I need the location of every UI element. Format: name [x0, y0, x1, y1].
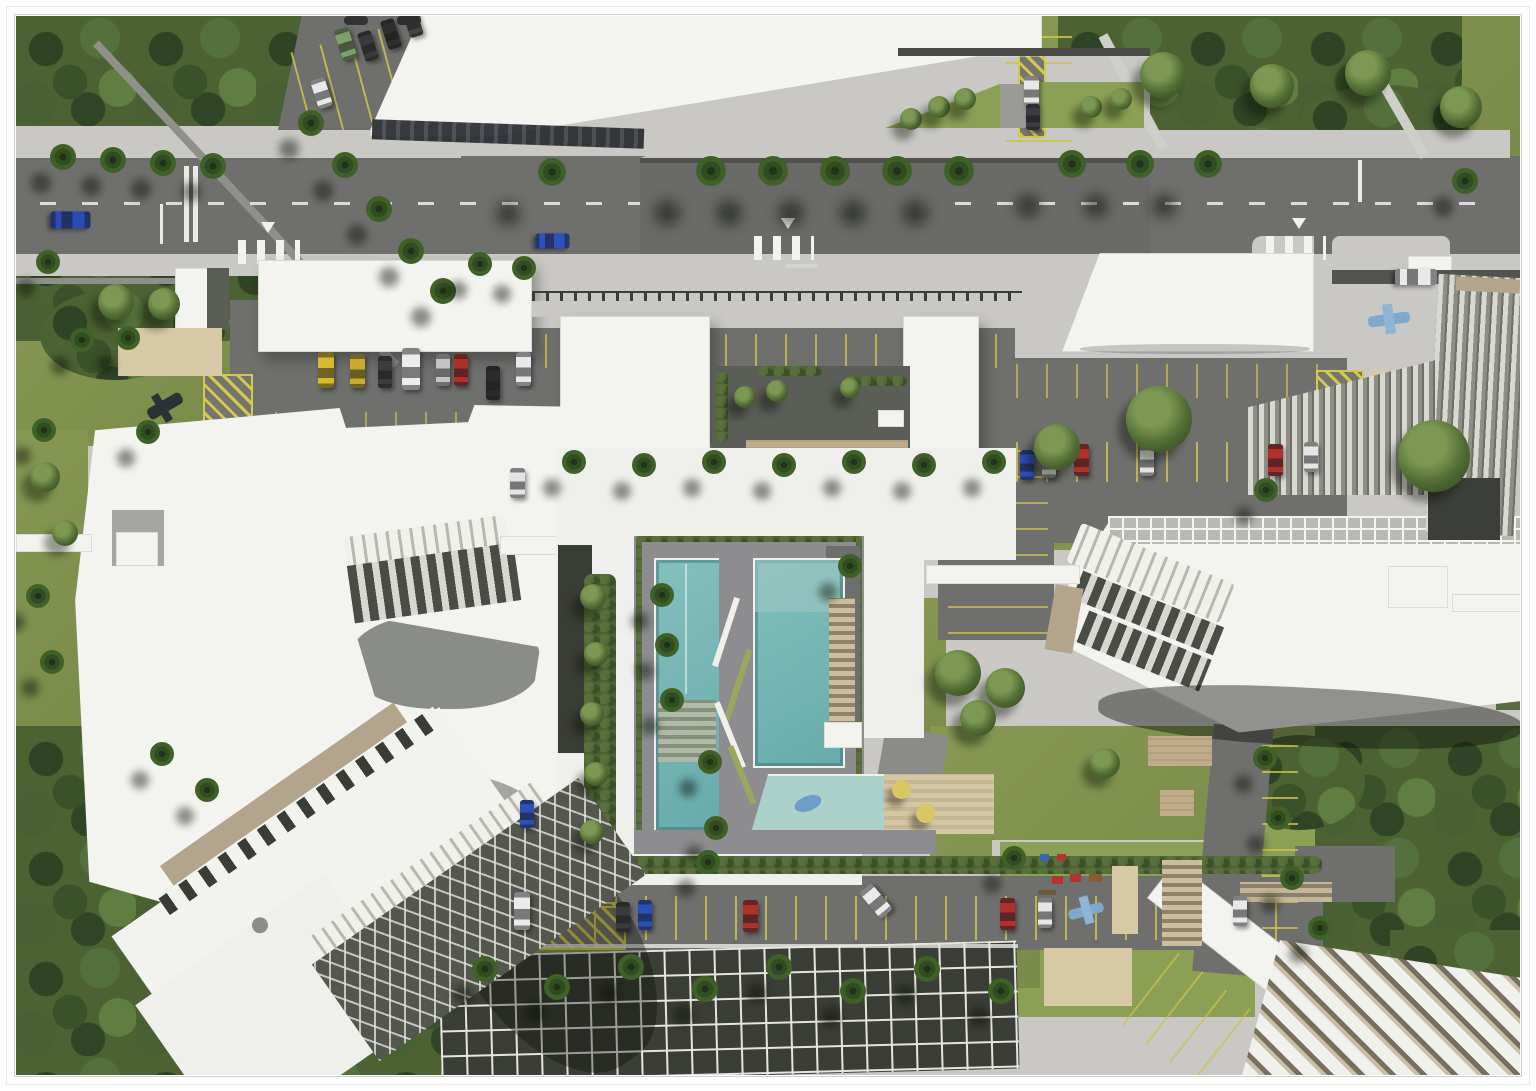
bridge-pool-east: [926, 565, 1080, 584]
umbrella-2: [916, 804, 935, 823]
lane-dash-right: [955, 202, 1500, 205]
palm-17: [538, 158, 566, 186]
bldg-c-right: [1062, 253, 1314, 352]
plines-se: [1262, 740, 1298, 955]
tree-14: [1398, 420, 1470, 492]
palm-18: [696, 156, 726, 186]
tree-09: [954, 88, 976, 110]
palm-09: [32, 418, 56, 442]
palm-05: [36, 250, 60, 274]
tree-06: [148, 288, 180, 320]
deck-bottom-gray: [634, 830, 936, 854]
tree-19: [580, 702, 604, 726]
tree-05: [98, 284, 134, 320]
car-21: [616, 902, 630, 932]
pool-right-shallow: [755, 560, 839, 612]
road-mark-c1: [786, 264, 818, 268]
palm-13: [398, 238, 424, 264]
palm-30: [772, 453, 796, 477]
frame-right: [1520, 0, 1536, 1091]
tree-08: [928, 96, 950, 118]
palm-56: [40, 650, 64, 674]
palm-27: [562, 450, 586, 474]
palm-12: [366, 196, 392, 222]
palm-55: [26, 584, 50, 608]
palm-38: [698, 750, 722, 774]
car-12: [486, 366, 500, 400]
car-stub-1: [344, 16, 368, 25]
umbrella-1: [892, 780, 911, 799]
car-22: [638, 900, 652, 930]
tree-18: [584, 642, 608, 666]
walk-fence-south: [532, 301, 1020, 317]
plines-rightlot-top: [1016, 364, 1346, 398]
playground-red-2: [1070, 874, 1081, 882]
wall-plaza-top: [898, 48, 1150, 56]
tree-10: [1080, 96, 1102, 118]
terrace-tree-2: [766, 380, 788, 402]
tree-15: [935, 650, 981, 696]
palm-54: [1002, 846, 1026, 870]
trellis-bench: [1162, 860, 1202, 946]
terrace-hedge-1: [716, 372, 728, 442]
lane-line-left: [160, 204, 163, 244]
sand-court-1: [1044, 948, 1132, 1006]
bldg-c-shadow: [1080, 344, 1310, 354]
terrace-tree-1: [734, 386, 756, 408]
bridge-far-east: [1452, 594, 1522, 612]
palm-04: [200, 153, 226, 179]
palm-03: [150, 150, 176, 176]
palm-46: [766, 954, 792, 980]
palm-01: [50, 144, 76, 170]
bldg-d-long: [258, 260, 532, 352]
tree-23: [1090, 748, 1120, 778]
sand-court-2: [1112, 866, 1138, 934]
crosswalk-center: [754, 236, 814, 260]
pergola-a: [1148, 736, 1212, 766]
playground-brown: [1089, 874, 1102, 882]
kiosk-dark: [207, 268, 229, 330]
w1-rooftop-box-white: [116, 532, 158, 566]
van-white: [402, 348, 420, 390]
stopbar-2: [193, 166, 198, 242]
car-23: [743, 900, 758, 932]
tree-17: [580, 584, 606, 610]
bus-white: [1395, 269, 1437, 285]
palm-53: [1308, 916, 1332, 940]
car-07: [1026, 104, 1040, 130]
palm-51: [1266, 806, 1290, 830]
frame-left: [0, 0, 16, 1091]
pool-left-lane: [685, 564, 687, 694]
terrace-table-1: [878, 410, 904, 427]
aerial-site-render: [0, 0, 1536, 1091]
palm-26: [1452, 168, 1478, 194]
car-20: [1304, 442, 1318, 472]
palm-44: [618, 954, 644, 980]
frame-bottom: [0, 1075, 1536, 1091]
palm-40: [696, 850, 720, 874]
tree-20: [584, 762, 608, 786]
car-08: [350, 354, 365, 388]
palm-52: [1280, 866, 1304, 890]
tree-07: [900, 108, 922, 130]
tree-16: [985, 668, 1025, 708]
palm-45: [692, 976, 718, 1002]
w2-roof-box: [1388, 566, 1448, 608]
tree-04: [1440, 86, 1482, 128]
car-14: [510, 468, 525, 498]
palm-32: [912, 453, 936, 477]
tree-22: [960, 700, 996, 736]
palm-08: [136, 420, 160, 444]
palm-58: [195, 778, 219, 802]
car-13: [516, 352, 531, 386]
palm-31: [842, 450, 866, 474]
palm-10: [298, 110, 324, 136]
tree-02: [1250, 64, 1294, 108]
car-10: [436, 354, 450, 386]
palm-06: [70, 328, 94, 352]
van-29: [514, 892, 530, 930]
palm-19: [758, 156, 788, 186]
deck-east: [856, 560, 924, 738]
palm-48: [914, 956, 940, 982]
car-06: [1024, 76, 1039, 106]
tree-25: [52, 520, 78, 546]
palm-42: [472, 956, 498, 982]
pool-box-east: [824, 722, 862, 748]
palm-28: [632, 453, 656, 477]
pergola-b: [1160, 790, 1194, 816]
frame-hedge-left: [636, 536, 642, 854]
car-15: [1020, 450, 1034, 480]
loungers-east: [829, 598, 855, 730]
frame-top: [0, 0, 1536, 16]
palm-11: [332, 152, 358, 178]
palm-50: [1253, 746, 1277, 770]
palm-35: [650, 583, 674, 607]
tree-01: [1140, 52, 1186, 98]
palm-47: [840, 978, 866, 1004]
palm-33: [982, 450, 1006, 474]
palm-14: [430, 278, 456, 304]
palm-22: [944, 156, 974, 186]
tree-13: [1034, 424, 1080, 470]
palm-41: [838, 554, 862, 578]
palm-34: [1254, 478, 1278, 502]
pool-lounge: [750, 774, 890, 836]
tree-24: [30, 462, 60, 492]
palm-02: [100, 147, 126, 173]
playground-red-3: [1057, 854, 1066, 861]
palm-43: [544, 974, 570, 1000]
playground-red-1: [1052, 876, 1063, 884]
terrace-hedge-2: [758, 366, 822, 376]
frame-hedge-top: [636, 536, 862, 542]
truck-blue: [51, 212, 91, 229]
palm-57: [150, 742, 174, 766]
kiosk-white: [175, 268, 211, 332]
wall-left-horiz: [16, 278, 181, 284]
palm-24: [1126, 150, 1154, 178]
car-11: [454, 354, 468, 386]
car-25: [1000, 898, 1015, 930]
palm-15: [468, 252, 492, 276]
car-blue-center: [536, 234, 570, 249]
palm-29: [702, 450, 726, 474]
tree-12: [1126, 386, 1192, 452]
palm-21: [882, 156, 912, 186]
palm-20: [820, 156, 850, 186]
car-taxi: [318, 352, 334, 388]
palm-39: [704, 816, 728, 840]
car-26: [1038, 898, 1052, 928]
lane-dash-vert-right: [1358, 160, 1362, 202]
palm-16: [512, 256, 536, 280]
lane-dash-left: [40, 202, 640, 205]
terrace-tree-3: [840, 378, 860, 398]
tree-21: [580, 820, 604, 844]
palm-25: [1194, 150, 1222, 178]
car-19: [1268, 444, 1283, 476]
palm-49: [988, 978, 1014, 1004]
palm-23: [1058, 150, 1086, 178]
palm-07: [116, 326, 140, 350]
car-28: [520, 800, 534, 828]
stopbar-1: [184, 166, 189, 242]
palm-36: [655, 633, 679, 657]
tree-03: [1345, 50, 1391, 96]
palm-37: [660, 688, 684, 712]
car-stub-2: [397, 16, 421, 25]
walk-tr-diag: [1040, 130, 1510, 158]
playground-bench: [1038, 890, 1056, 895]
playground-blue: [1040, 854, 1049, 861]
scene-layer: [0, 0, 1536, 1091]
car-27: [1233, 896, 1247, 926]
tree-11: [1110, 88, 1132, 110]
car-09: [378, 356, 392, 388]
